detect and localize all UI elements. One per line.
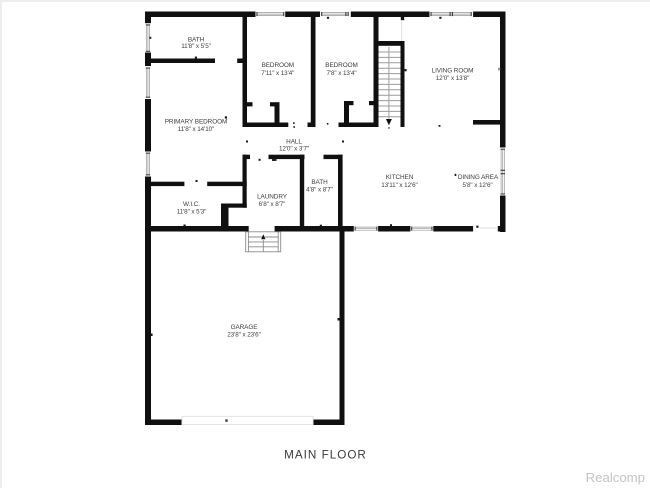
- svg-text:6'8" x 8'7": 6'8" x 8'7": [259, 201, 286, 208]
- svg-text:DINING AREA: DINING AREA: [458, 174, 499, 181]
- svg-text:BATH: BATH: [311, 179, 328, 186]
- svg-text:BEDROOM: BEDROOM: [262, 62, 294, 69]
- svg-text:LIVING ROOM: LIVING ROOM: [432, 68, 474, 75]
- svg-text:4'8" x 8'7": 4'8" x 8'7": [306, 187, 333, 194]
- svg-text:KITCHEN: KITCHEN: [386, 174, 414, 181]
- svg-text:12'0" x 13'8": 12'0" x 13'8": [436, 75, 470, 82]
- svg-text:13'11" x 12'6": 13'11" x 12'6": [381, 182, 417, 189]
- svg-text:W.I.C.: W.I.C.: [183, 201, 200, 208]
- svg-text:MAIN FLOOR: MAIN FLOOR: [284, 448, 367, 461]
- svg-text:5'8" x 12'6": 5'8" x 12'6": [462, 182, 492, 189]
- svg-text:PRIMARY BEDROOM: PRIMARY BEDROOM: [165, 119, 227, 126]
- svg-text:7'8" x 13'4": 7'8" x 13'4": [326, 70, 356, 77]
- svg-text:11'8" x 5'5": 11'8" x 5'5": [181, 43, 211, 50]
- svg-text:LAUNDRY: LAUNDRY: [257, 194, 288, 201]
- svg-text:11'8" x 5'3": 11'8" x 5'3": [177, 209, 207, 216]
- svg-text:BEDROOM: BEDROOM: [325, 62, 357, 69]
- svg-text:12'0" x 3'7": 12'0" x 3'7": [279, 146, 309, 153]
- svg-text:7'11" x 13'4": 7'11" x 13'4": [261, 70, 294, 77]
- svg-text:GARAGE: GARAGE: [231, 324, 258, 331]
- svg-text:Realcomp: Realcomp: [586, 470, 645, 485]
- svg-text:23'8" x 23'6": 23'8" x 23'6": [227, 332, 261, 339]
- svg-text:HALL: HALL: [286, 139, 302, 146]
- svg-text:11'8" x 14'10": 11'8" x 14'10": [178, 126, 214, 133]
